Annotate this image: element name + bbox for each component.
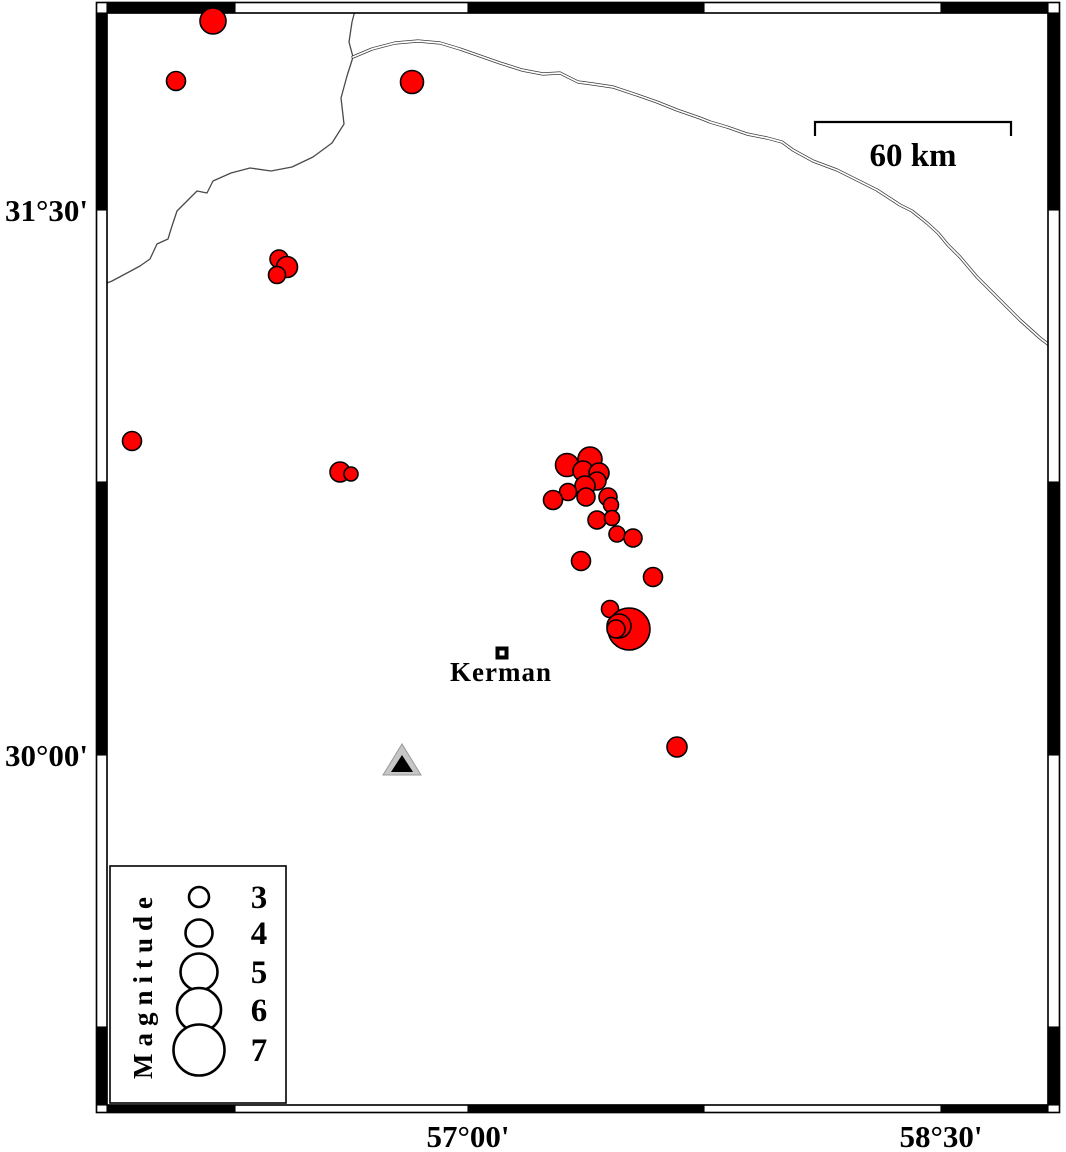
frame-band-segment <box>941 1105 1048 1113</box>
frame-band-segment <box>468 3 704 14</box>
frame-band-segment <box>107 1105 235 1113</box>
city-square-inner <box>500 651 505 656</box>
station-triangle-marker <box>383 744 421 775</box>
epicenter-circle <box>624 529 642 547</box>
longitude-tick-label: 57°00' <box>426 1119 509 1152</box>
epicenter-circle <box>588 511 606 529</box>
legend-magnitude-value: 3 <box>251 880 268 916</box>
legend-magnitude-value: 7 <box>251 1033 268 1069</box>
frame-corner-cell <box>97 1105 108 1113</box>
legend-magnitude-circle <box>189 887 209 907</box>
epicenter-layer <box>123 8 688 757</box>
epicenter-circle <box>544 491 563 510</box>
seismicity-map: 60 km Kerman Magnitude 34567 31°30'30°00… <box>0 0 1066 1152</box>
epicenter-circle <box>123 432 142 451</box>
epicenter-circle <box>167 72 186 91</box>
frame-corner-cell <box>1048 3 1060 14</box>
frame-band-segment <box>97 13 108 210</box>
map-lines-layer <box>107 3 1053 348</box>
scale-bar-bracket <box>815 122 1011 136</box>
epicenter-circle <box>269 267 286 284</box>
epicenter-circle <box>401 71 424 94</box>
epicenter-circle <box>577 488 595 506</box>
epicenter-circle <box>605 511 620 526</box>
legend-magnitude-value: 6 <box>251 993 268 1029</box>
scale-bar-label: 60 km <box>869 138 956 174</box>
latitude-tick-label: 30°00' <box>5 738 88 773</box>
epicenter-circle <box>572 552 591 571</box>
frame-band-segment <box>97 1027 108 1105</box>
frame-corner-cell <box>1048 1105 1060 1113</box>
frame-band-segment <box>1048 13 1060 210</box>
frame-band-segment <box>941 3 1048 14</box>
road-line <box>353 41 1053 348</box>
legend-magnitude-value: 5 <box>251 955 268 991</box>
map-canvas: 60 km Kerman Magnitude 34567 31°30'30°00… <box>0 0 1066 1152</box>
epicenter-circle <box>609 526 625 542</box>
epicenter-circle <box>200 8 226 34</box>
legend-magnitude-circle <box>174 1025 225 1076</box>
epicenter-circle <box>607 620 625 638</box>
road-line-core <box>353 41 1053 348</box>
legend-magnitude-circle <box>181 954 218 991</box>
frame-corner-cell <box>97 3 108 14</box>
latitude-tick-label: 31°30' <box>5 193 88 228</box>
frame-band-segment <box>97 482 108 755</box>
legend-magnitude-circle <box>186 920 213 947</box>
epicenter-circle <box>644 568 663 587</box>
scale-bar: 60 km <box>815 122 1011 174</box>
frame-band-segment <box>1048 1027 1060 1105</box>
city-marker-kerman: Kerman <box>450 647 552 688</box>
river-line <box>107 3 357 283</box>
legend-title: Magnitude <box>128 890 158 1079</box>
magnitude-legend: Magnitude 34567 <box>110 866 286 1103</box>
legend-magnitude-value: 4 <box>251 916 268 952</box>
epicenter-circle <box>344 467 358 481</box>
epicenter-circle <box>667 737 687 757</box>
longitude-tick-label: 58°30' <box>899 1119 982 1152</box>
frame-band-segment <box>468 1105 704 1113</box>
frame-band-segment <box>1048 482 1060 755</box>
city-label: Kerman <box>450 657 552 687</box>
